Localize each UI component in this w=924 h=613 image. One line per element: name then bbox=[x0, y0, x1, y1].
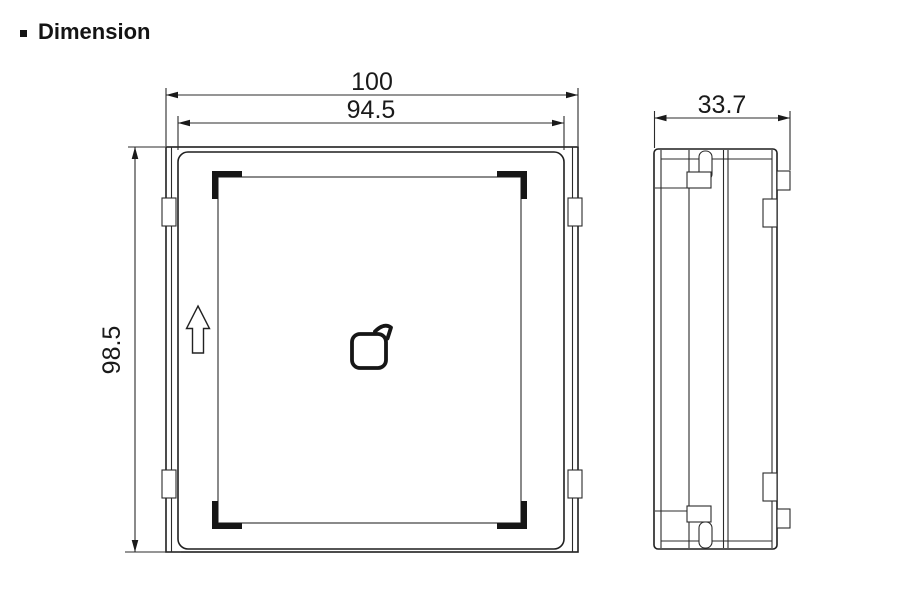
dim-panel-width: 94.5 bbox=[178, 96, 564, 150]
arrowhead-right bbox=[778, 115, 790, 122]
arrowhead-top bbox=[132, 147, 139, 159]
clip-right-top bbox=[568, 198, 582, 226]
rear-clip-bottom bbox=[763, 473, 777, 501]
arrowhead-left bbox=[178, 120, 190, 127]
dim-outer-width-value: 100 bbox=[351, 68, 393, 96]
side-clip-shelf-bottom bbox=[687, 506, 711, 522]
dim-depth-value: 33.7 bbox=[698, 91, 747, 119]
arrowhead-right bbox=[566, 92, 578, 99]
rear-tab-top bbox=[777, 171, 790, 190]
arrowhead-right bbox=[552, 120, 564, 127]
dim-height-value: 98.5 bbox=[98, 326, 126, 375]
rear-clip-top bbox=[763, 199, 777, 227]
arrowhead-bottom bbox=[132, 540, 139, 552]
side-clip-capsule-bottom bbox=[699, 522, 712, 548]
arrowhead-left bbox=[166, 92, 178, 99]
clip-left-bottom bbox=[162, 470, 176, 498]
side-body bbox=[654, 149, 777, 549]
dimension-drawing: 100 94.5 98.5 33.7 bbox=[0, 0, 924, 613]
side-clip-shelf-top bbox=[687, 172, 711, 188]
front-view bbox=[162, 147, 582, 552]
clip-right-bottom bbox=[568, 470, 582, 498]
front-panel bbox=[178, 152, 564, 549]
rear-tab-bottom bbox=[777, 509, 790, 528]
clip-left-top bbox=[162, 198, 176, 226]
side-view bbox=[654, 149, 790, 549]
dim-panel-width-value: 94.5 bbox=[347, 96, 396, 124]
arrowhead-left bbox=[655, 115, 667, 122]
